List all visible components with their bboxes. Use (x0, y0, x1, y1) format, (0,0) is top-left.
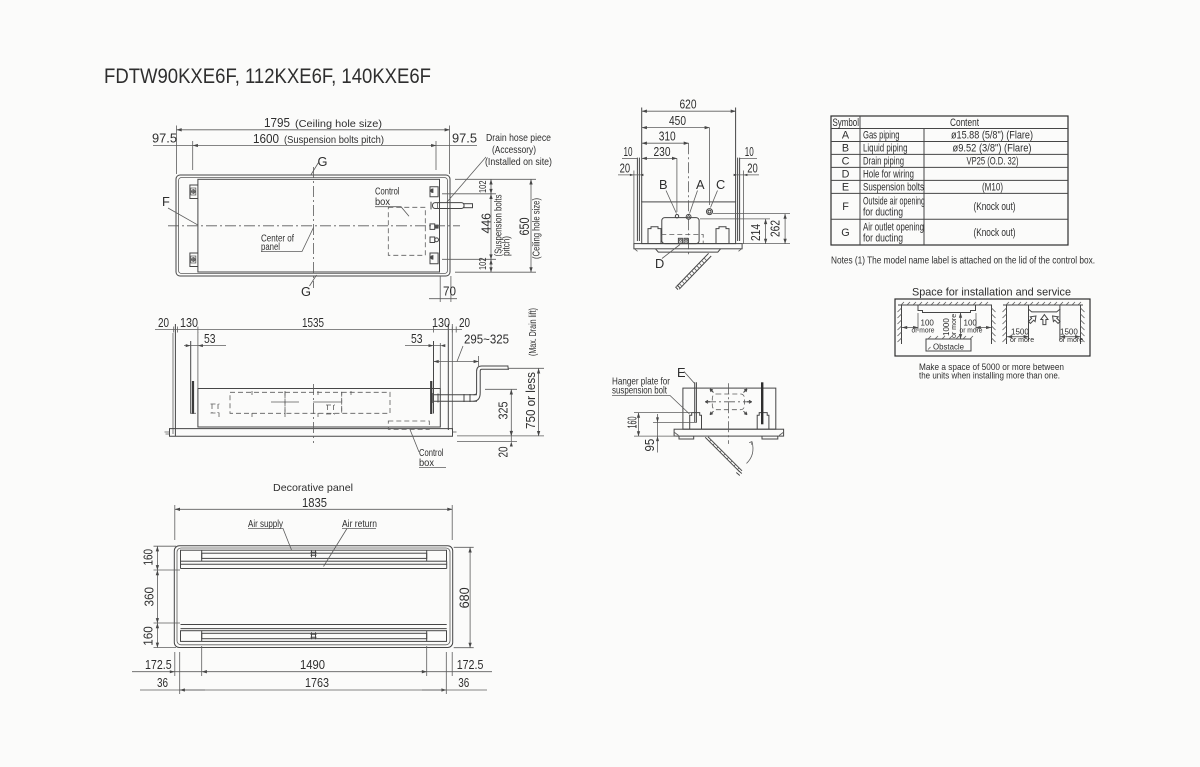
svg-text:Obstacle: Obstacle (933, 343, 965, 352)
svg-text:Gas piping: Gas piping (863, 130, 900, 142)
svg-text:160: 160 (140, 549, 155, 566)
svg-text:or more: or more (951, 314, 958, 338)
svg-text:for ducting: for ducting (863, 207, 903, 219)
svg-text:G: G (318, 154, 328, 169)
svg-text:or more: or more (1059, 337, 1083, 344)
svg-text:(M10): (M10) (982, 181, 1003, 193)
svg-text:G: G (841, 227, 849, 239)
svg-text:ø15.88 (5/8") (Flare): ø15.88 (5/8") (Flare) (951, 130, 1033, 142)
svg-text:Symbol: Symbol (833, 117, 860, 129)
svg-text:ø9.52 (3/8") (Flare): ø9.52 (3/8") (Flare) (953, 143, 1032, 155)
svg-text:172.5: 172.5 (457, 657, 484, 672)
svg-text:20: 20 (620, 160, 631, 175)
svg-text:680: 680 (457, 587, 472, 608)
svg-text:or more: or more (1010, 337, 1034, 344)
svg-text:VP25 (O.D. 32): VP25 (O.D. 32) (967, 156, 1019, 168)
svg-text:D: D (842, 169, 850, 181)
svg-text:(Suspension bolts pitch): (Suspension bolts pitch) (284, 134, 384, 146)
svg-text:36: 36 (157, 675, 168, 690)
svg-text:10: 10 (624, 144, 633, 159)
svg-text:suspension bolt: suspension bolt (612, 385, 667, 397)
svg-text:Content: Content (950, 117, 979, 129)
svg-text:for ducting: for ducting (863, 232, 903, 244)
svg-text:Drain piping: Drain piping (863, 156, 904, 168)
svg-text:pitch): pitch) (501, 236, 513, 256)
svg-text:or more: or more (960, 328, 983, 335)
svg-text:36: 36 (458, 675, 469, 690)
svg-text:A: A (842, 130, 850, 142)
svg-text:A: A (696, 177, 705, 192)
svg-text:10: 10 (745, 144, 754, 159)
svg-text:172.5: 172.5 (145, 657, 172, 672)
svg-text:750 or less: 750 or less (523, 372, 538, 429)
svg-text:1000: 1000 (942, 318, 951, 336)
svg-text:1763: 1763 (305, 675, 329, 690)
svg-text:214: 214 (748, 224, 763, 241)
svg-text:95: 95 (642, 439, 657, 452)
svg-text:310: 310 (659, 129, 676, 144)
svg-text:B: B (842, 143, 849, 155)
svg-text:Drain hose piece: Drain hose piece (486, 132, 551, 144)
svg-text:262: 262 (768, 220, 783, 237)
svg-text:or more: or more (912, 328, 935, 335)
svg-text:1500: 1500 (1011, 328, 1029, 337)
svg-text:20: 20 (158, 315, 169, 330)
svg-text:C: C (842, 156, 850, 168)
svg-text:G: G (301, 284, 311, 299)
svg-text:(Max. Drain lift): (Max. Drain lift) (527, 308, 539, 356)
svg-text:Liquid piping: Liquid piping (863, 143, 908, 155)
svg-text:20: 20 (459, 315, 470, 330)
svg-text:B: B (659, 177, 668, 192)
svg-text:C: C (716, 177, 725, 192)
svg-text:325: 325 (496, 402, 511, 420)
svg-text:20: 20 (747, 160, 758, 175)
svg-text:130: 130 (432, 315, 450, 330)
svg-text:Space for installation and ser: Space for installation and service (912, 287, 1071, 299)
svg-text:(Ceiling hole size): (Ceiling hole size) (295, 118, 382, 130)
svg-text:1535: 1535 (302, 315, 324, 330)
svg-text:130: 130 (180, 315, 198, 330)
svg-text:1490: 1490 (300, 657, 325, 672)
svg-text:E: E (677, 365, 686, 380)
svg-text:(Ceiling hole size): (Ceiling hole size) (531, 198, 543, 259)
svg-text:1500: 1500 (1060, 328, 1078, 337)
svg-text:650: 650 (516, 217, 532, 235)
svg-text:97.5: 97.5 (452, 131, 477, 146)
svg-text:53: 53 (204, 331, 216, 346)
svg-text:620: 620 (680, 97, 697, 112)
svg-text:E: E (842, 181, 849, 193)
svg-text:F: F (842, 201, 849, 213)
svg-text:160: 160 (625, 417, 640, 429)
svg-text:446: 446 (479, 213, 494, 234)
svg-text:FDTW90KXE6F, 112KXE6F, 140KXE6: FDTW90KXE6F, 112KXE6F, 140KXE6F (104, 65, 431, 88)
svg-text:box: box (375, 196, 391, 208)
svg-text:Hole for wiring: Hole for wiring (863, 169, 914, 181)
svg-text:102: 102 (478, 258, 489, 271)
svg-text:Notes (1) The model name label: Notes (1) The model name label is attach… (831, 256, 1095, 267)
svg-text:Suspension bolts: Suspension bolts (863, 181, 924, 193)
svg-text:360: 360 (142, 587, 157, 607)
svg-text:(Installed on site): (Installed on site) (485, 156, 552, 168)
svg-text:450: 450 (669, 113, 686, 128)
svg-text:53: 53 (411, 331, 423, 346)
svg-text:100: 100 (921, 319, 935, 328)
svg-text:1600: 1600 (253, 131, 279, 146)
svg-text:1795: 1795 (264, 115, 290, 130)
svg-text:the units when installing more: the units when installing more than one. (919, 371, 1060, 381)
svg-text:(Knock out): (Knock out) (974, 227, 1016, 239)
svg-text:295~325: 295~325 (464, 332, 509, 347)
svg-text:F: F (162, 194, 170, 209)
svg-text:230: 230 (654, 144, 671, 159)
svg-text:(Knock out): (Knock out) (974, 201, 1016, 213)
svg-text:102: 102 (478, 181, 489, 194)
svg-text:70: 70 (443, 284, 456, 299)
svg-text:(Accessory): (Accessory) (492, 144, 536, 156)
svg-text:97.5: 97.5 (152, 131, 177, 146)
svg-text:Decorative panel: Decorative panel (273, 482, 353, 494)
svg-text:100: 100 (964, 319, 978, 328)
svg-text:1835: 1835 (302, 495, 327, 510)
svg-text:20: 20 (496, 447, 511, 458)
svg-text:160: 160 (140, 626, 155, 646)
